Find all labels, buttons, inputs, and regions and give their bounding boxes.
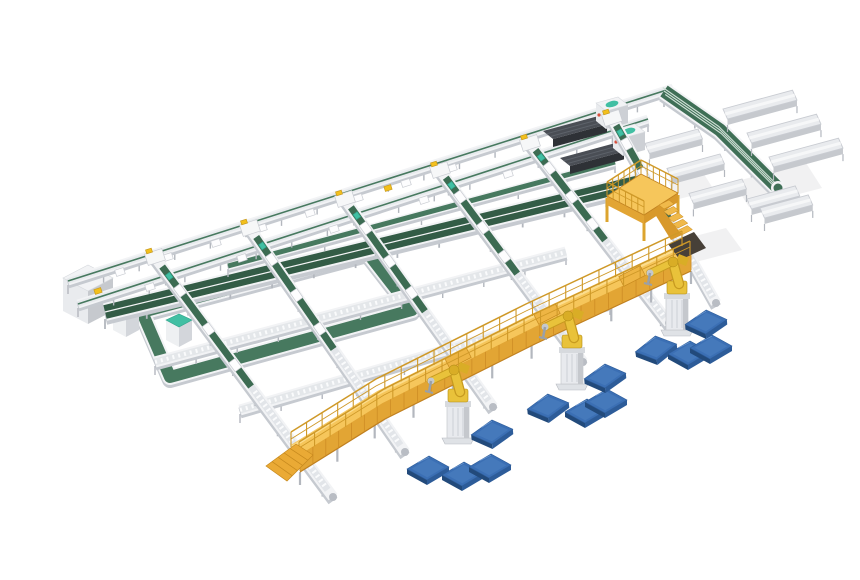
pallet	[634, 333, 680, 368]
pallet	[583, 362, 627, 395]
pallet	[684, 309, 728, 341]
lane-end-stop	[401, 448, 409, 456]
sorter-lanes	[145, 109, 720, 501]
robot-elbow-joint	[563, 311, 573, 321]
pallet	[407, 456, 449, 485]
robot-elbow-joint	[449, 365, 459, 375]
lane-end-stop	[489, 403, 497, 411]
pedestal-base	[556, 384, 588, 390]
pallet	[526, 392, 571, 425]
status-light	[597, 113, 600, 116]
pedestal-shade	[578, 352, 583, 384]
pedestal-base	[442, 438, 474, 444]
pallet	[470, 418, 514, 451]
render-canvas	[0, 0, 860, 580]
lane-end-stop	[712, 299, 720, 307]
pedestal-base	[661, 330, 693, 336]
pedestal-shade	[464, 406, 469, 438]
robot-elbow-joint	[668, 257, 678, 267]
automated-sortation-factory-render	[0, 0, 860, 580]
lane-end-stop	[329, 493, 337, 501]
